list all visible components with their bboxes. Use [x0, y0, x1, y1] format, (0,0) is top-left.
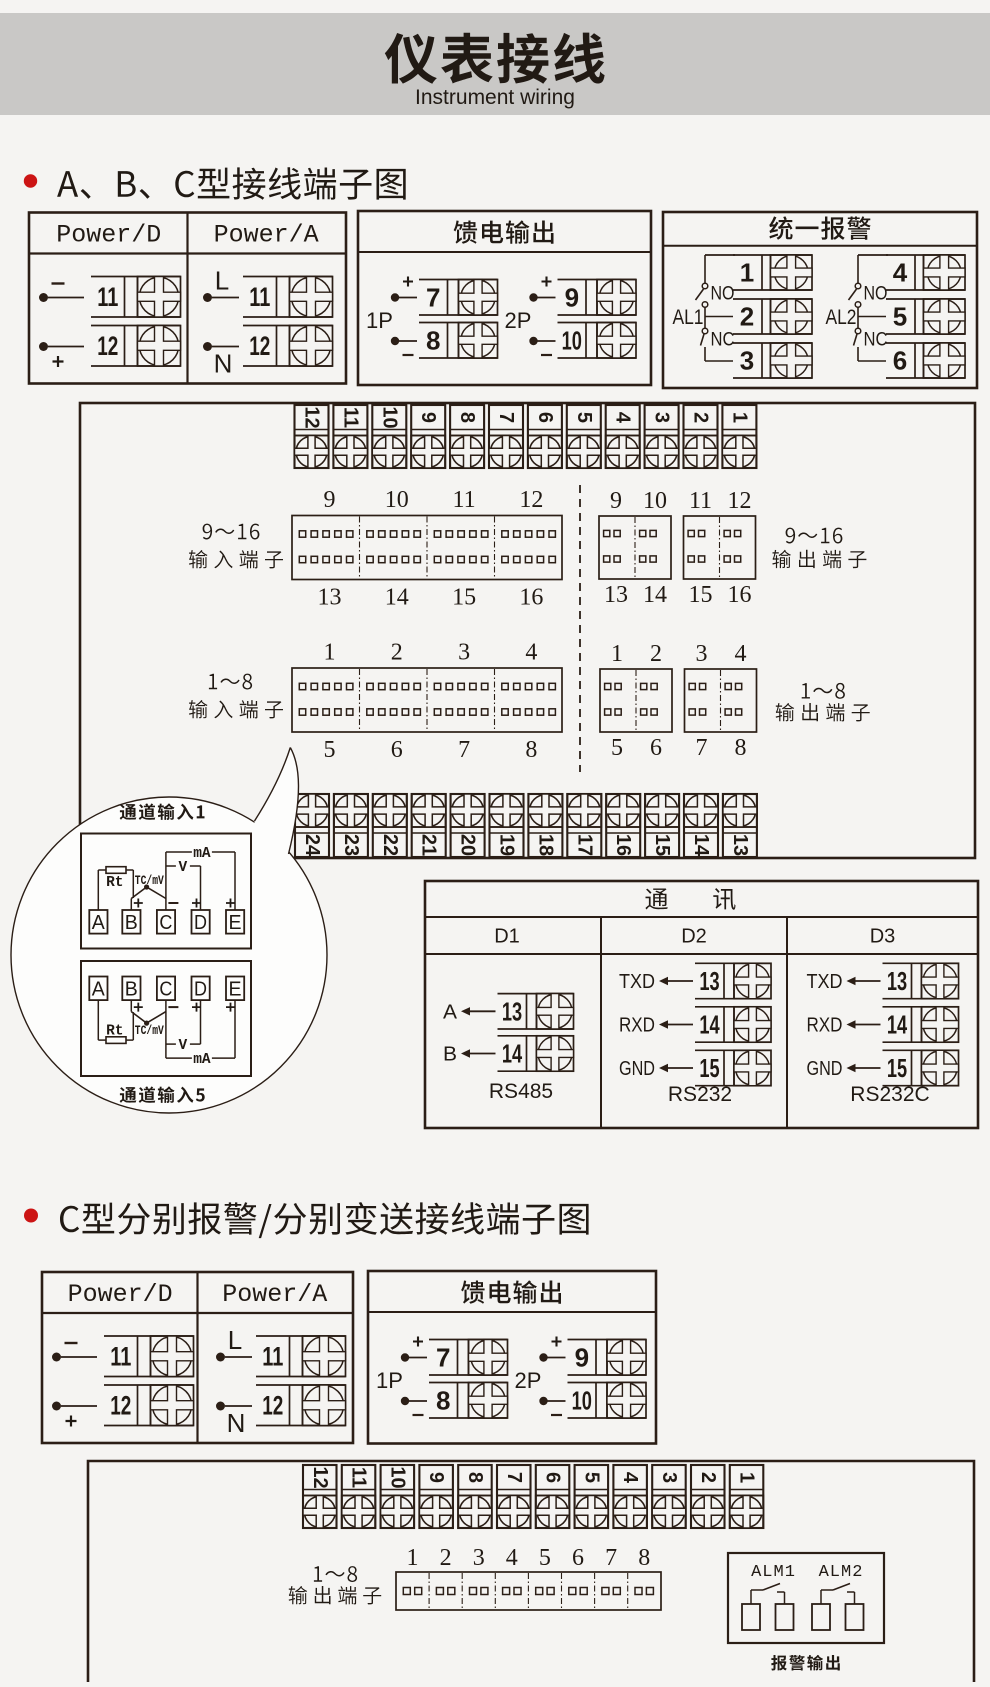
svg-text:4: 4: [525, 640, 537, 666]
svg-text:10: 10: [378, 406, 400, 428]
svg-text:7: 7: [458, 737, 470, 763]
svg-text:TC/mV: TC/mV: [135, 1024, 164, 1038]
svg-text:7: 7: [436, 1342, 450, 1372]
svg-text:13: 13: [729, 834, 751, 856]
svg-text:10: 10: [386, 1466, 408, 1488]
svg-text:5: 5: [539, 1545, 551, 1571]
svg-text:A: A: [92, 912, 106, 934]
svg-text:N: N: [227, 1408, 246, 1438]
svg-text:ALM2: ALM2: [819, 1563, 864, 1582]
svg-text:4: 4: [612, 412, 634, 424]
svg-text:10: 10: [643, 488, 667, 514]
svg-text:8: 8: [735, 735, 747, 761]
svg-text:6: 6: [534, 412, 556, 423]
svg-text:RXD: RXD: [619, 1015, 655, 1037]
svg-text:12: 12: [728, 488, 752, 514]
svg-text:RXD: RXD: [807, 1015, 843, 1037]
svg-text:1: 1: [740, 258, 754, 288]
svg-text:7: 7: [696, 735, 708, 761]
svg-text:2: 2: [697, 1472, 719, 1483]
svg-text:2: 2: [391, 640, 403, 666]
svg-text:13: 13: [604, 582, 628, 608]
svg-text:24: 24: [301, 834, 323, 857]
svg-text:E: E: [229, 912, 242, 934]
svg-text:2: 2: [690, 412, 712, 423]
svg-text:TC/mV: TC/mV: [135, 874, 164, 888]
svg-text:12: 12: [97, 331, 118, 361]
svg-text:L: L: [215, 266, 229, 296]
svg-text:2P: 2P: [515, 1368, 542, 1393]
svg-text:1: 1: [407, 1545, 419, 1571]
svg-text:14: 14: [643, 582, 667, 608]
svg-text:3: 3: [740, 346, 754, 376]
svg-text:9: 9: [610, 488, 622, 514]
svg-text:C: C: [159, 912, 172, 934]
svg-text:AL1: AL1: [673, 306, 704, 329]
svg-text:16: 16: [728, 582, 752, 608]
svg-text:Rt: Rt: [106, 1024, 123, 1040]
svg-text:GND: GND: [807, 1058, 843, 1080]
svg-text:NO: NO: [711, 284, 735, 305]
svg-text:5: 5: [611, 735, 623, 761]
svg-text:11: 11: [97, 282, 118, 312]
svg-text:V: V: [179, 1038, 188, 1054]
svg-text:5: 5: [893, 302, 907, 332]
svg-text:RS232: RS232: [668, 1083, 732, 1106]
svg-text:6: 6: [650, 735, 662, 761]
svg-text:3: 3: [651, 412, 673, 423]
svg-text:7: 7: [503, 1472, 525, 1483]
svg-text:5: 5: [324, 737, 336, 763]
svg-text:15: 15: [651, 834, 673, 856]
svg-text:12: 12: [110, 1391, 131, 1421]
svg-text:1: 1: [611, 641, 623, 667]
svg-text:7: 7: [605, 1545, 617, 1571]
svg-text:11: 11: [453, 487, 476, 513]
svg-text:mA: mA: [193, 1052, 211, 1068]
svg-text:11: 11: [689, 488, 712, 514]
svg-text:D1: D1: [494, 926, 520, 948]
svg-text:14: 14: [502, 1039, 523, 1069]
svg-text:11: 11: [348, 1467, 370, 1488]
svg-text:8: 8: [456, 412, 478, 423]
svg-text:12: 12: [249, 331, 270, 361]
svg-text:12: 12: [301, 406, 323, 428]
svg-text:1: 1: [736, 1472, 758, 1483]
svg-text:7: 7: [426, 282, 440, 312]
svg-text:TXD: TXD: [619, 971, 655, 993]
svg-text:B: B: [125, 912, 138, 934]
svg-text:4: 4: [619, 1472, 641, 1484]
svg-text:B: B: [443, 1044, 457, 1066]
svg-text:13: 13: [318, 585, 342, 611]
svg-text:10: 10: [385, 487, 409, 513]
svg-text:1: 1: [728, 412, 750, 423]
svg-text:3: 3: [658, 1472, 680, 1483]
svg-text:D2: D2: [681, 926, 707, 948]
svg-text:10: 10: [562, 325, 582, 355]
svg-text:8: 8: [426, 325, 440, 355]
svg-text:12: 12: [262, 1391, 283, 1421]
svg-text:6: 6: [572, 1545, 584, 1571]
svg-text:Power/A: Power/A: [214, 221, 319, 250]
svg-text:11: 11: [262, 1342, 283, 1372]
svg-text:NO: NO: [864, 284, 888, 305]
svg-text:A: A: [92, 979, 106, 1001]
svg-text:1: 1: [324, 640, 336, 666]
svg-text:14: 14: [699, 1010, 720, 1040]
svg-text:11: 11: [249, 282, 270, 312]
svg-text:D3: D3: [870, 926, 896, 948]
svg-text:2: 2: [650, 641, 662, 667]
svg-text:1P: 1P: [376, 1368, 403, 1393]
svg-text:11: 11: [339, 407, 361, 428]
svg-text:2: 2: [440, 1545, 452, 1571]
svg-text:20: 20: [457, 834, 479, 856]
svg-text:2: 2: [740, 302, 754, 332]
svg-text:Power/D: Power/D: [68, 1280, 173, 1309]
svg-text:ALM1: ALM1: [751, 1563, 796, 1582]
svg-text:6: 6: [542, 1472, 564, 1483]
svg-text:Power/A: Power/A: [222, 1280, 327, 1309]
svg-text:13: 13: [699, 966, 719, 996]
svg-text:L: L: [228, 1325, 242, 1355]
svg-text:8: 8: [525, 737, 537, 763]
svg-text:Rt: Rt: [106, 875, 123, 891]
svg-text:22: 22: [379, 834, 401, 856]
svg-text:3: 3: [473, 1545, 485, 1571]
svg-text:12: 12: [309, 1466, 331, 1488]
svg-text:9: 9: [425, 1472, 447, 1483]
svg-text:3: 3: [696, 641, 708, 667]
svg-text:A: A: [443, 1001, 458, 1023]
svg-text:D: D: [194, 912, 207, 934]
svg-text:GND: GND: [619, 1058, 655, 1080]
svg-text:1P: 1P: [366, 308, 393, 333]
svg-text:7: 7: [495, 412, 517, 423]
svg-text:C: C: [159, 979, 172, 1001]
svg-text:15: 15: [887, 1053, 907, 1083]
svg-text:mA: mA: [193, 846, 211, 862]
svg-text:2P: 2P: [505, 308, 532, 333]
svg-text:9: 9: [417, 412, 439, 423]
svg-text:10: 10: [572, 1385, 592, 1415]
svg-text:9: 9: [324, 487, 336, 513]
svg-text:Instrument wiring: Instrument wiring: [415, 86, 575, 109]
svg-text:TXD: TXD: [807, 971, 843, 993]
svg-text:4: 4: [506, 1545, 518, 1571]
svg-text:14: 14: [887, 1010, 908, 1040]
svg-text:RS232C: RS232C: [850, 1083, 929, 1106]
svg-text:21: 21: [418, 834, 440, 856]
svg-text:4: 4: [893, 258, 908, 288]
svg-text:15: 15: [689, 582, 713, 608]
svg-text:18: 18: [534, 834, 556, 856]
svg-text:5: 5: [573, 412, 595, 423]
svg-text:4: 4: [735, 641, 747, 667]
svg-text:8: 8: [638, 1545, 650, 1571]
svg-text:14: 14: [690, 834, 712, 857]
svg-text:9: 9: [575, 1342, 589, 1372]
svg-text:V: V: [179, 860, 188, 876]
svg-text:D: D: [194, 979, 207, 1001]
svg-text:6: 6: [391, 737, 403, 763]
svg-text:N: N: [214, 349, 233, 379]
svg-text:NC: NC: [711, 330, 735, 351]
svg-text:8: 8: [436, 1385, 450, 1415]
svg-text:8: 8: [464, 1472, 486, 1483]
svg-text:13: 13: [502, 996, 522, 1026]
svg-text:19: 19: [496, 834, 518, 856]
svg-text:B: B: [125, 979, 138, 1001]
svg-text:RS485: RS485: [489, 1080, 553, 1103]
svg-text:16: 16: [519, 585, 543, 611]
svg-text:AL2: AL2: [826, 306, 857, 329]
svg-text:15: 15: [452, 585, 476, 611]
svg-text:15: 15: [699, 1053, 719, 1083]
svg-text:14: 14: [385, 585, 409, 611]
svg-text:12: 12: [519, 487, 543, 513]
svg-text:6: 6: [893, 346, 907, 376]
svg-text:NC: NC: [864, 330, 888, 351]
svg-text:E: E: [229, 979, 242, 1001]
svg-text:3: 3: [458, 640, 470, 666]
svg-text:13: 13: [887, 966, 907, 996]
svg-text:5: 5: [580, 1472, 602, 1483]
svg-text:11: 11: [110, 1342, 131, 1372]
svg-text:17: 17: [573, 834, 595, 856]
svg-text:9: 9: [565, 282, 579, 312]
svg-text:Power/D: Power/D: [56, 221, 161, 250]
svg-text:23: 23: [340, 834, 362, 856]
svg-text:16: 16: [612, 834, 634, 856]
